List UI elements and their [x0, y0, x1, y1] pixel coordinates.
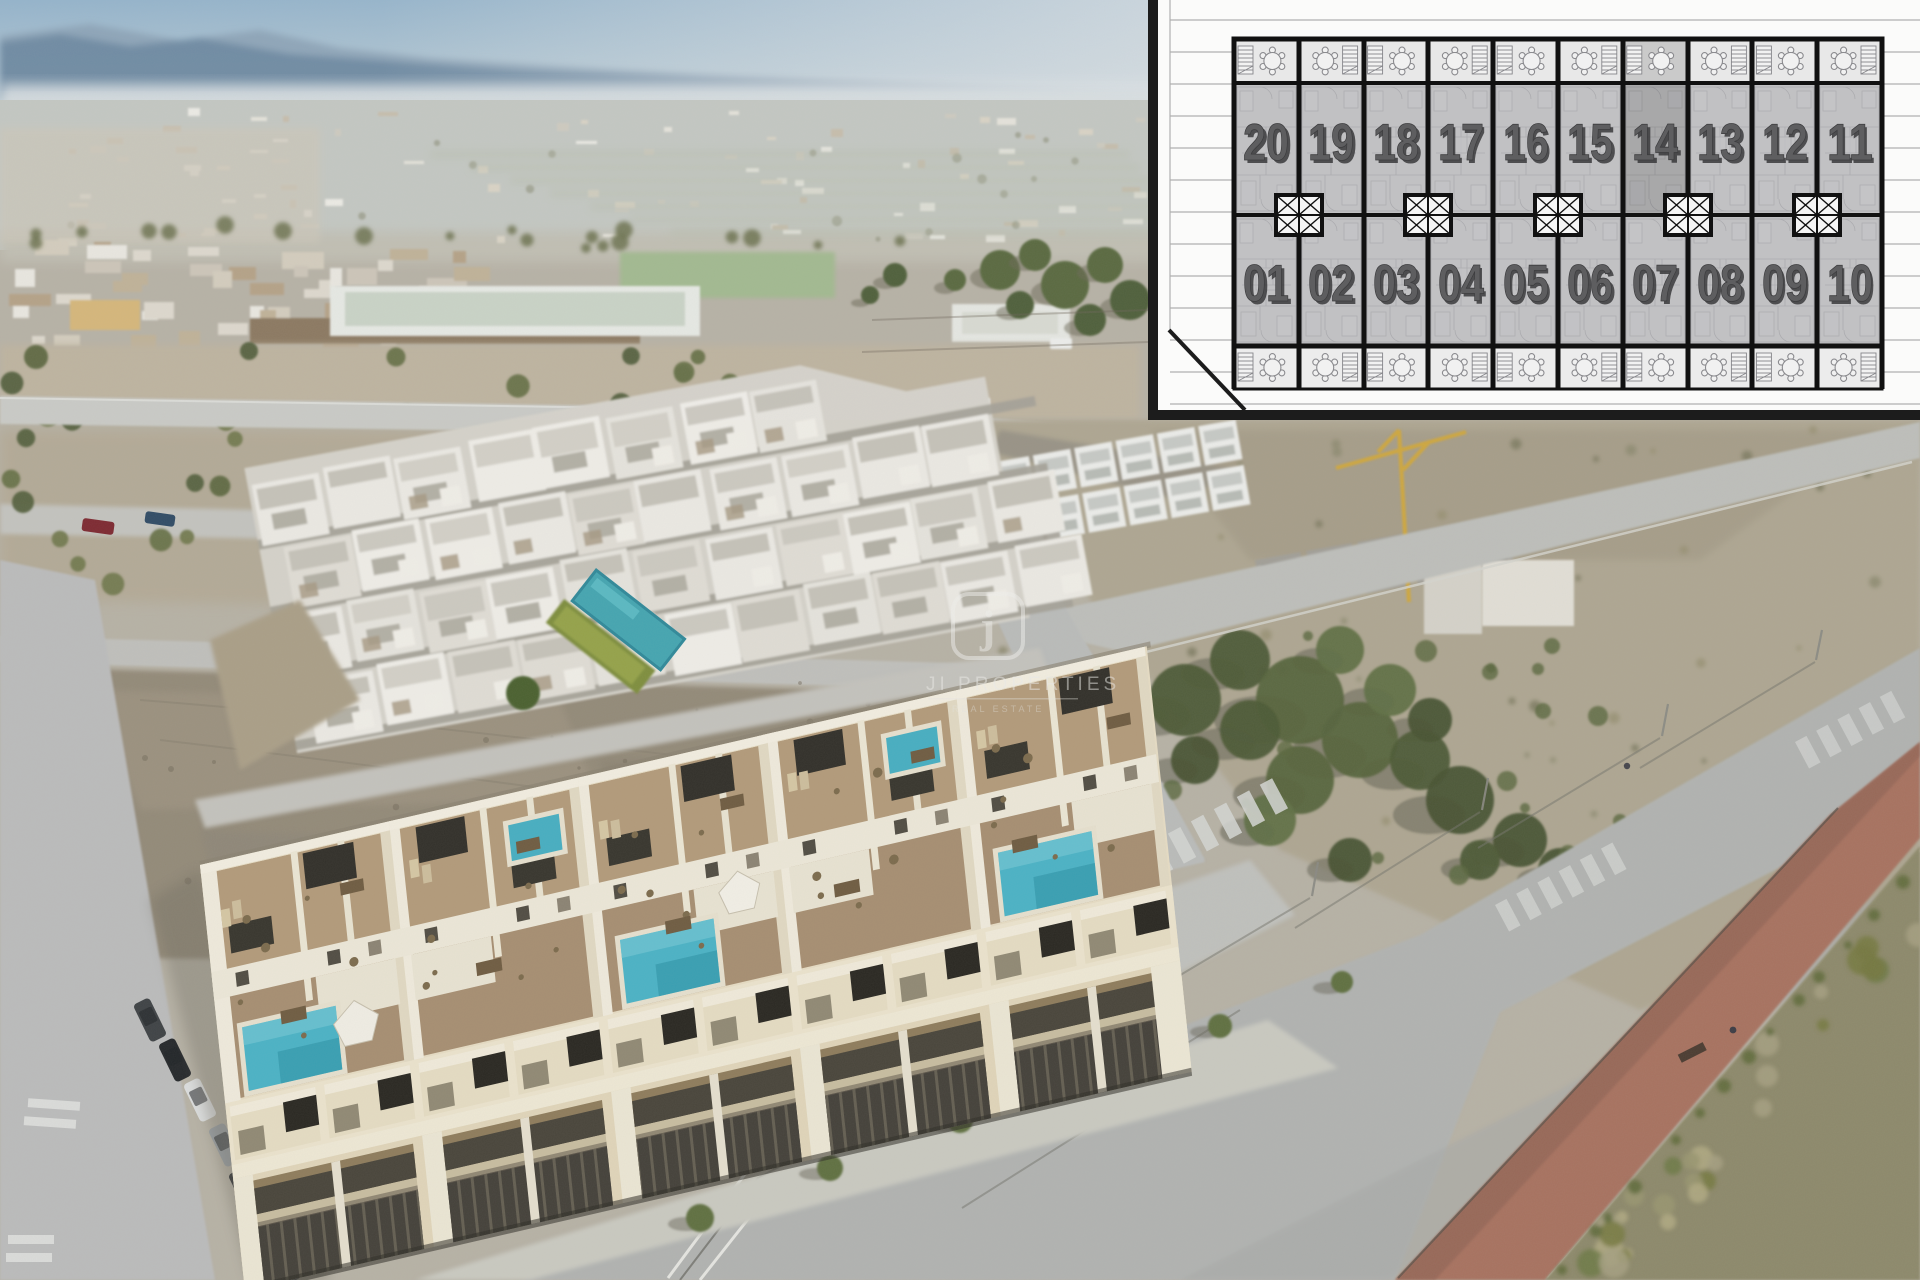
svg-text:07: 07 [1632, 255, 1678, 313]
svg-text:15: 15 [1567, 114, 1613, 172]
svg-text:04: 04 [1438, 255, 1484, 313]
svg-text:17: 17 [1438, 114, 1484, 172]
svg-text:19: 19 [1308, 114, 1354, 172]
svg-text:02: 02 [1308, 255, 1354, 313]
svg-text:11: 11 [1827, 114, 1873, 172]
svg-text:12: 12 [1762, 114, 1808, 172]
svg-text:16: 16 [1503, 114, 1549, 172]
svg-text:08: 08 [1697, 255, 1743, 313]
svg-text:10: 10 [1827, 255, 1873, 313]
svg-text:13: 13 [1697, 114, 1743, 172]
svg-text:01: 01 [1243, 255, 1289, 313]
svg-text:06: 06 [1567, 255, 1613, 313]
svg-text:20: 20 [1243, 114, 1289, 172]
svg-text:05: 05 [1503, 255, 1549, 313]
svg-text:14: 14 [1632, 114, 1678, 172]
svg-text:09: 09 [1762, 255, 1808, 313]
svg-text:18: 18 [1373, 114, 1419, 172]
svg-text:03: 03 [1373, 255, 1419, 313]
